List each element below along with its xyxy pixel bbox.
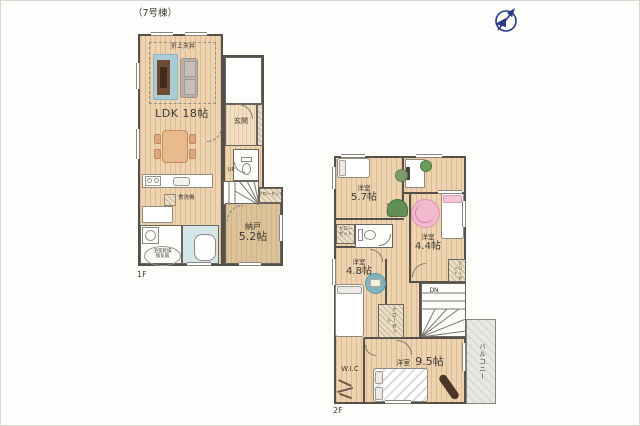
bathtub <box>194 234 216 261</box>
room95-size: 9.5帖 <box>415 355 444 368</box>
pillow <box>337 286 362 294</box>
toilet-tank-2f <box>358 229 363 241</box>
kitchen-cupboard <box>142 206 173 223</box>
dining-chair <box>154 149 161 159</box>
window <box>332 167 336 189</box>
window <box>185 32 207 36</box>
dn-label: DN <box>425 288 443 295</box>
plant <box>420 160 432 172</box>
burner <box>147 178 152 183</box>
window <box>416 154 442 158</box>
dishwasher-box <box>164 194 176 206</box>
up-label: UP <box>223 167 239 173</box>
window <box>385 400 411 404</box>
floor1-label: 1F <box>137 270 157 279</box>
balcony-door <box>462 343 466 371</box>
window <box>462 201 466 227</box>
room95-name: 洋室 <box>396 359 410 367</box>
floor-plan-sheet: （7号棟） <box>0 0 640 426</box>
toilet-bowl-2f <box>364 230 376 240</box>
closet-left-label: クロー ゼット <box>335 227 356 237</box>
closet-mid-label: クローゼット <box>386 306 396 336</box>
window <box>187 262 211 266</box>
dining-table <box>162 130 188 163</box>
bath-fan-line2: 換気扇 <box>145 254 180 259</box>
room95-label: 洋室 9.5帖 <box>389 351 451 369</box>
entrance-porch-tiles <box>225 57 262 104</box>
desk-chair <box>395 169 408 182</box>
unit-title: （7号棟） <box>133 9 203 20</box>
sofa-cushion <box>184 61 196 77</box>
pillow-pink <box>443 195 462 203</box>
window <box>239 262 261 266</box>
low-table <box>370 279 381 287</box>
sink <box>173 177 190 186</box>
tv <box>160 67 167 88</box>
storage-room-label: 納戸 5.2帖 <box>232 222 274 244</box>
floor2-label: 2F <box>333 406 353 415</box>
dining-chair <box>189 149 196 159</box>
pillow <box>339 160 346 176</box>
ldk-label: LDK 18帖 <box>146 108 218 121</box>
shoe-cabinet <box>257 104 263 146</box>
rug-pattern <box>415 203 435 223</box>
genkan-label: 玄関 <box>229 117 253 125</box>
window <box>279 215 283 241</box>
room48-size: 4.8帖 <box>337 266 381 278</box>
window <box>341 154 365 158</box>
window <box>136 129 140 159</box>
pillow <box>375 371 383 384</box>
wic-label: W.I.C <box>337 365 363 373</box>
room44-size: 4.4帖 <box>407 241 449 253</box>
room48-label: 洋室 4.8帖 <box>337 259 381 278</box>
room57-label: 洋室 5.7帖 <box>341 185 387 204</box>
sofa-cushion <box>184 79 196 95</box>
dishwasher-label: 食洗機 <box>178 195 210 201</box>
closet-small-label: クローゼット <box>453 261 462 281</box>
bath-fan-label: 浴室乾燥 換気扇 <box>144 246 181 266</box>
window <box>332 259 336 285</box>
dining-chair <box>154 134 161 144</box>
closet-left-line2: ゼット <box>335 232 356 237</box>
dining-chair <box>189 134 196 144</box>
burner <box>154 178 159 183</box>
closet-label-1f: クローゼット <box>258 192 284 197</box>
room44-label: 洋室 4.4帖 <box>407 234 449 253</box>
washing-machine-drum <box>145 230 156 241</box>
window <box>438 190 462 194</box>
window <box>151 32 173 36</box>
balcony-label: バルコニー <box>477 336 484 388</box>
stairs-1f <box>223 181 259 205</box>
pillow <box>375 387 383 400</box>
compass-icon <box>491 4 521 34</box>
storage-room-size: 5.2帖 <box>232 231 274 244</box>
room57-size: 5.7帖 <box>341 192 387 204</box>
window <box>136 63 140 89</box>
wall <box>334 218 404 220</box>
ceiling-label: 折上天井 <box>151 44 215 51</box>
